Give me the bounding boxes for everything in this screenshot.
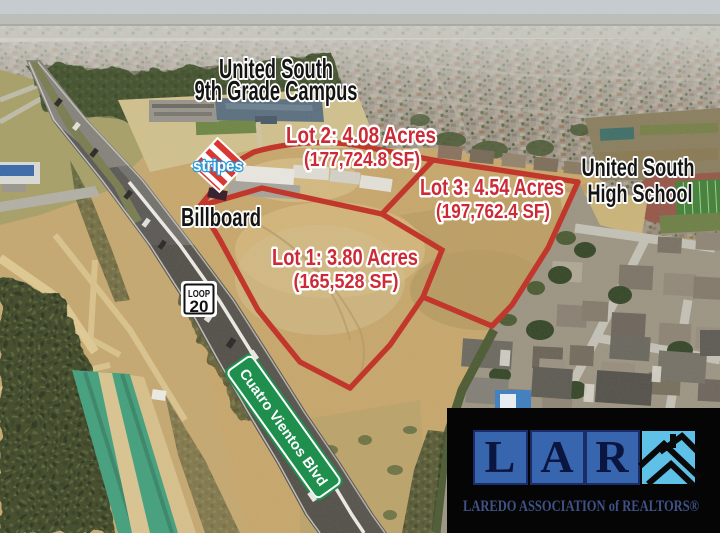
svg-text:A: A [540, 431, 573, 482]
svg-text:Billboard: Billboard [181, 202, 261, 232]
svg-text:(177,724.8 SF): (177,724.8 SF) [304, 149, 420, 171]
svg-text:Lot 1: 3.80 Acres: Lot 1: 3.80 Acres [272, 244, 418, 270]
svg-text:stripes: stripes [193, 156, 243, 175]
svg-text:9th Grade Campus: 9th Grade Campus [195, 75, 358, 106]
svg-text:20: 20 [190, 297, 209, 316]
svg-text:Lot 2: 4.08 Acres: Lot 2: 4.08 Acres [286, 122, 436, 148]
svg-text:(165,528 SF): (165,528 SF) [294, 271, 399, 293]
svg-text:United South: United South [582, 154, 695, 182]
svg-text:Lot 3: 4.54 Acres: Lot 3: 4.54 Acres [420, 174, 564, 200]
svg-text:L: L [485, 431, 516, 482]
svg-text:LAREDO ASSOCIATION of REALTORS: LAREDO ASSOCIATION of REALTORS® [463, 498, 699, 515]
svg-text:(197,762.4 SF): (197,762.4 SF) [436, 201, 550, 223]
svg-text:R: R [595, 431, 629, 482]
svg-text:High School: High School [588, 180, 693, 208]
